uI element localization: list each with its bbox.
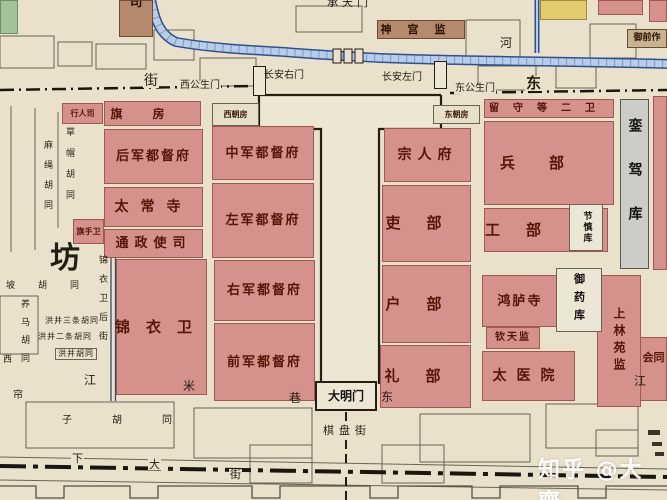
corridor-vertical-arm: [321, 95, 379, 384]
block-hubu: 户部: [382, 265, 471, 343]
label-mi-street: 米: [183, 380, 195, 392]
block-label-dongchaofang: 东朝房: [445, 111, 469, 119]
block-xichaofang: 西朝房: [212, 103, 259, 126]
block-yuyaoku: 御药库: [556, 268, 602, 332]
block-zuojun-dudufu: 左军都督府: [212, 183, 314, 258]
block-label-taichangsi: 太常寺: [115, 200, 193, 214]
label-jiang-west: 江: [84, 374, 96, 386]
label-qipanjie: 棋盘街: [322, 425, 372, 436]
label-dong-east-big: 东: [525, 76, 542, 91]
label-po-hutong: 坡胡同: [6, 282, 102, 291]
block-label-jieshenku: 节慎库: [582, 211, 591, 244]
block-label-qishouwei: 旗手卫: [77, 228, 101, 236]
block-xingrensi: 行人司: [62, 103, 103, 124]
block-zongrenfu: 宗人府: [384, 128, 471, 182]
block-qifang: 旗房: [104, 101, 201, 126]
block-gate-changan-left: [434, 61, 447, 89]
bridge: [333, 49, 363, 63]
label-changanyoumen: 长安右门: [264, 71, 304, 81]
block-label-houjun-dudufu: 后军都督府: [116, 150, 191, 163]
label-jie-bottom: 街: [229, 469, 242, 480]
block-dongchaofang: 东朝房: [433, 105, 480, 124]
block-label-shanglin-yuanjian: 上林苑监: [613, 307, 625, 375]
block-label-qintianjian: 钦天监: [495, 333, 531, 343]
block-label-jinyiwei: 锦衣卫: [115, 320, 208, 335]
block-label-bingbu: 兵部: [500, 156, 598, 171]
label-hongjing-hutong: 洪井胡同: [55, 348, 97, 360]
block-tongzhengshisi: 通政使司: [104, 229, 203, 258]
block-label-liushou-deng-erwei: 留守等二卫: [489, 104, 609, 114]
block-label-qianjun-dudufu: 前军都督府: [227, 356, 302, 369]
block-qintianjian: 钦天监: [486, 327, 540, 349]
label-street-jie-west: 街: [143, 74, 159, 88]
block-bingbu: 兵部: [484, 121, 614, 205]
block-honglusi: 鸿胪寺: [482, 275, 558, 327]
label-xiang-street: 巷: [289, 392, 301, 404]
block-label-qifang: 旗房: [110, 108, 194, 120]
label-changanzuomen: 长安左门: [382, 73, 422, 83]
label-caomao-hutong: 草帽胡同: [64, 127, 73, 211]
label-xigongshengmen: 西公生门: [179, 81, 221, 91]
block-label-youjun-dudufu: 右军都督府: [227, 284, 302, 297]
label-xi-west: 西: [3, 356, 12, 365]
block-label-si-office: 司: [129, 0, 142, 9]
block-label-hubu: 户部: [385, 297, 467, 312]
block-label-xichaofang: 西朝房: [224, 111, 248, 119]
block-label-libu-rites: 礼部: [384, 369, 466, 384]
block-green-block: [0, 0, 18, 34]
label-donggongshengmen: 东公生门: [454, 84, 496, 94]
block-youjun-dudufu: 右军都督府: [214, 260, 315, 321]
block-yellow-block: [540, 0, 587, 20]
block-si-office: 司: [119, 0, 153, 37]
historical-beijing-map: 行人司旗房后军都督府太常寺通政使司旗手卫锦衣卫中军都督府左军都督府右军都督府前军…: [0, 0, 667, 500]
block-label-zuojun-dudufu: 左军都督府: [225, 214, 300, 227]
block-jieshenku: 节慎库: [569, 204, 603, 251]
block-label-gongbu: 工部: [485, 223, 567, 238]
block-yuqianzuo: 御前作: [627, 29, 667, 48]
label-hongjing-ertiao-hutong: 洪井二条胡同: [38, 333, 92, 341]
block-taiyiyuan: 太医院: [482, 351, 575, 401]
block-label-damingmen: 大明门: [328, 390, 364, 402]
label-xia-street: 下: [71, 453, 84, 464]
label-jiang-east: 江: [634, 375, 646, 387]
label-dong-street: 东: [381, 391, 393, 403]
block-shengongjian: 神宫监: [377, 20, 465, 39]
block-luanjiaku: 銮驾库: [620, 99, 649, 269]
block-red-block-top-b: [649, 0, 667, 22]
label-da-street: 大: [148, 459, 161, 470]
label-chengtianmen: 承天门: [327, 0, 372, 8]
block-label-luanjiaku: 銮驾库: [628, 118, 642, 250]
block-label-honglusi: 鸿胪寺: [497, 295, 542, 308]
label-lianzi-hutong-first: 帘: [13, 391, 23, 401]
block-zhongjun-dudufu: 中军都督府: [212, 126, 314, 180]
block-label-huitongguan: 会同: [643, 352, 665, 363]
block-libu-rites: 礼部: [380, 345, 471, 408]
block-label-tongzhengshisi: 通政使司: [115, 237, 191, 250]
block-label-zongrenfu: 宗人府: [398, 148, 458, 162]
block-label-libu-personnel: 吏部: [385, 216, 467, 231]
block-red-strip-east: [653, 96, 667, 270]
block-label-shengongjian: 神宫监: [381, 24, 462, 35]
block-label-yuqianzuo: 御前作: [633, 34, 660, 43]
block-qianjun-dudufu: 前军都督府: [214, 323, 315, 401]
block-huitongguan: 会同: [640, 337, 667, 401]
block-jinyiwei: 锦衣卫: [116, 259, 207, 395]
block-red-block-top-a: [598, 0, 643, 15]
block-taichangsi: 太常寺: [104, 187, 203, 227]
label-jinyiwei-back-street: 锦衣卫后街: [97, 255, 106, 350]
label-fang-ward: 坊: [50, 244, 80, 274]
block-damingmen: 大明门: [315, 381, 377, 411]
label-zi-hutong: 子胡同: [62, 416, 212, 426]
block-label-yuyaoku: 御药库: [574, 273, 585, 327]
block-label-taiyiyuan: 太医院: [493, 369, 565, 383]
block-liushou-deng-erwei: 留守等二卫: [484, 99, 614, 118]
label-masheng-hutong: 麻绳胡同: [42, 140, 51, 220]
block-houjun-dudufu: 后军都督府: [104, 129, 203, 184]
label-river-he: 河: [500, 37, 512, 49]
block-libu-personnel: 吏部: [382, 185, 471, 262]
label-yangma-hutong: 养马胡同: [19, 299, 28, 371]
block-label-xingrensi: 行人司: [71, 110, 95, 118]
label-hongjing-santiao-hutong: 洪井三条胡同: [45, 317, 99, 325]
zhihu-watermark: 知乎 @大齊: [538, 452, 667, 500]
block-label-zhongjun-dudufu: 中军都督府: [225, 147, 300, 160]
